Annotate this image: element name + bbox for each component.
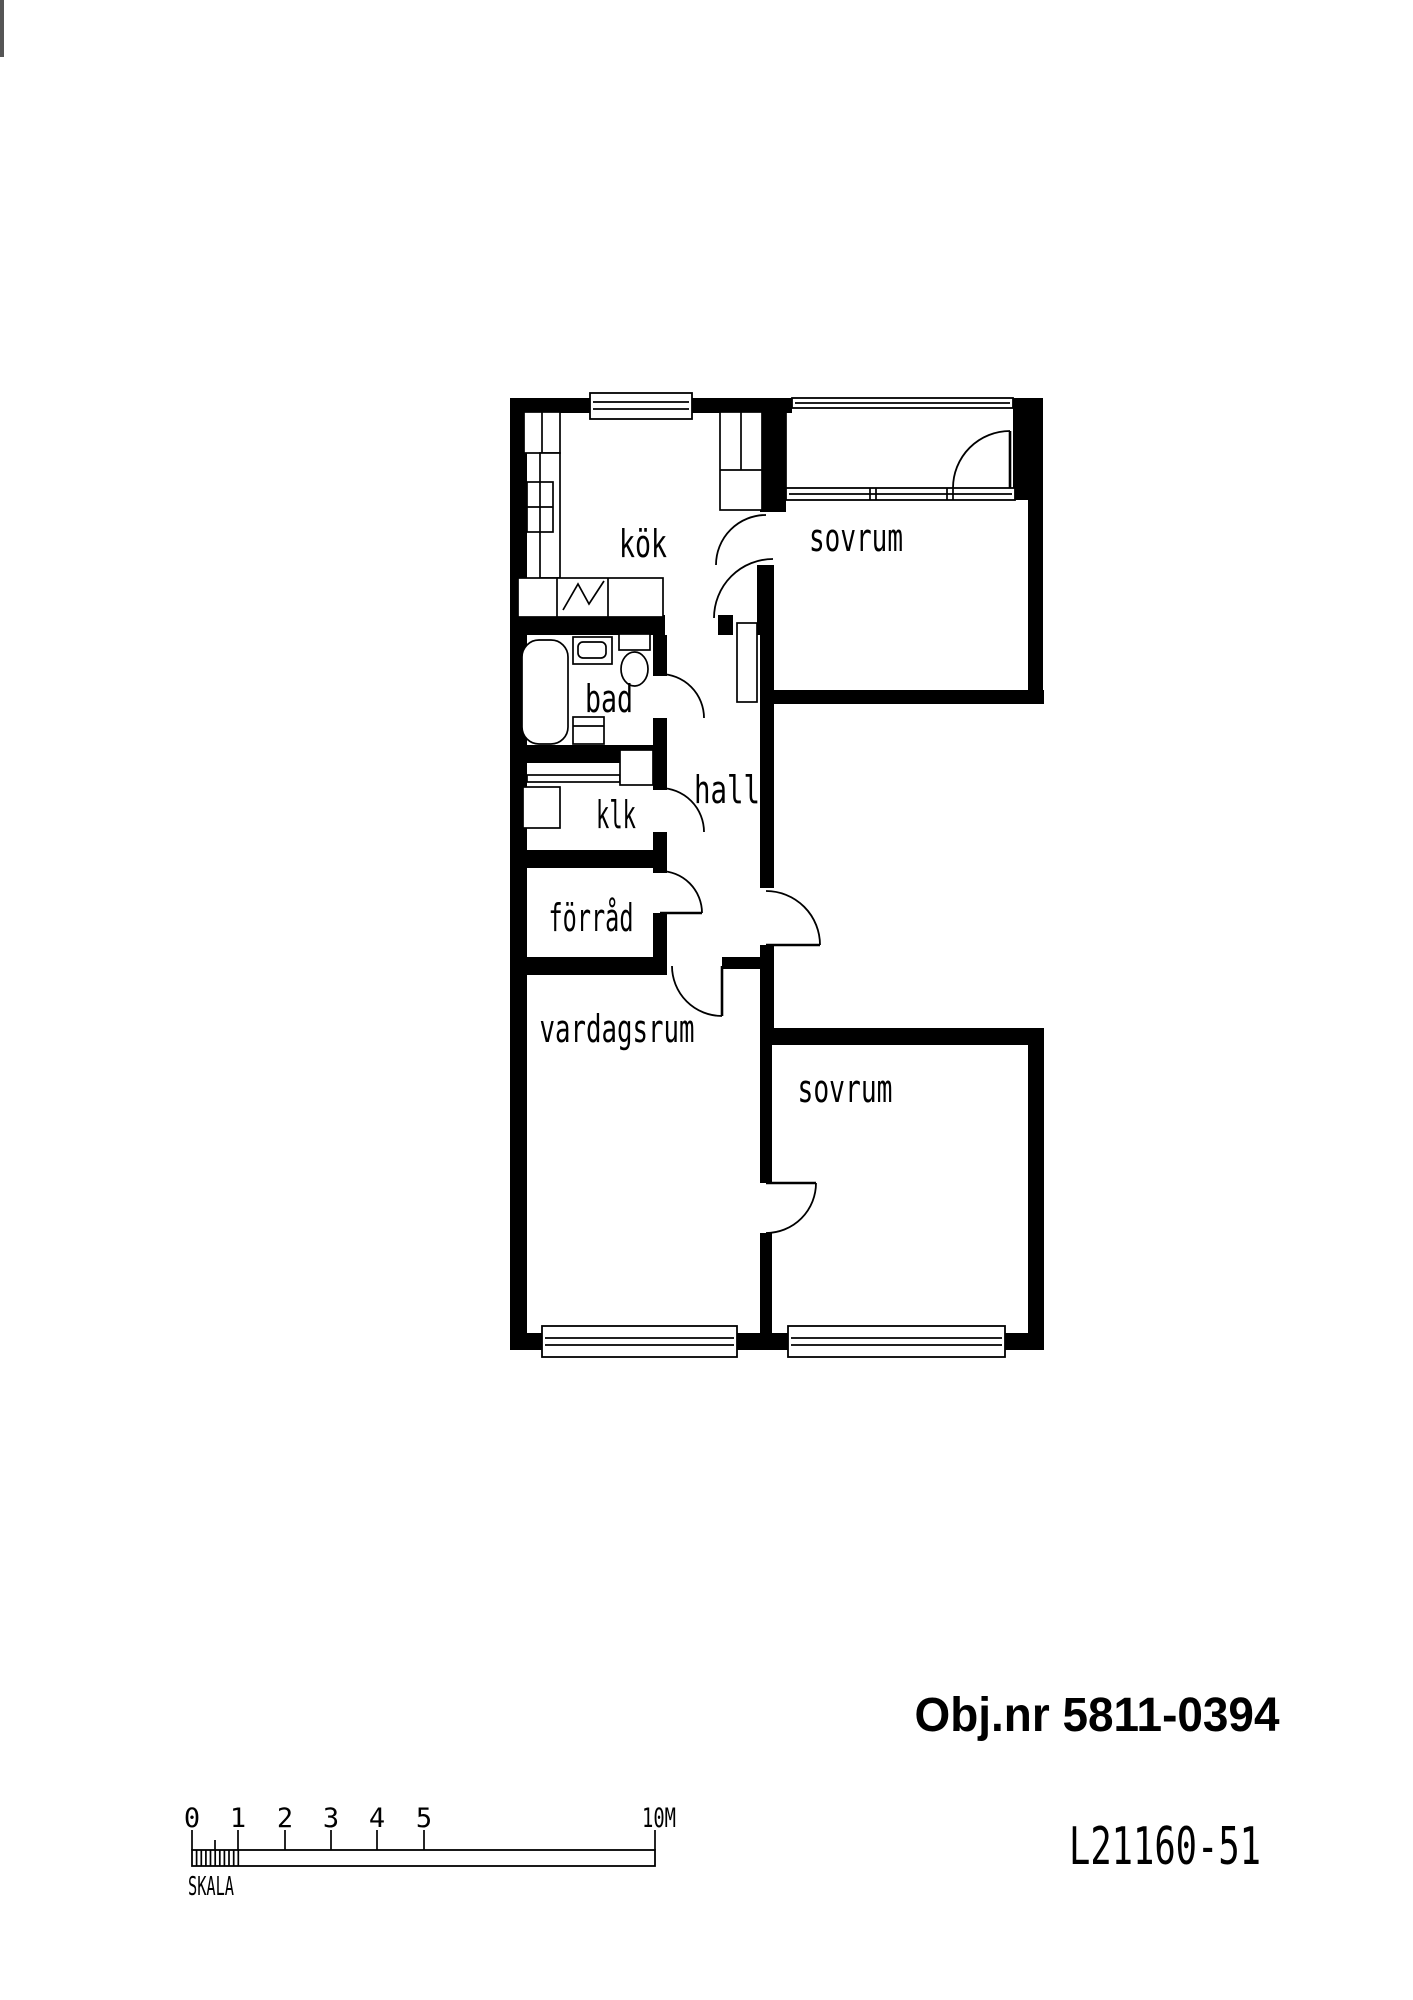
room-label-sovrum-top: sovrum xyxy=(809,516,903,560)
wall-outer-bottom-a xyxy=(510,1333,542,1350)
wall-spine-b xyxy=(760,945,774,1032)
scale-tick-5: 5 xyxy=(416,1803,432,1834)
wall-outer-bottom-c xyxy=(1005,1333,1044,1350)
wall-klk-right-a xyxy=(653,763,667,790)
drawing-id: L21160-51 xyxy=(1069,1817,1261,1877)
wall-hall-bottom xyxy=(722,957,762,969)
room-label-hall: hall xyxy=(694,768,760,812)
bathroom-door-arc xyxy=(660,674,704,718)
wall-outer-right-top xyxy=(1028,398,1043,704)
sink-counter-symbol xyxy=(518,578,663,617)
wall-outer-bottom-b xyxy=(737,1333,788,1350)
room-label-kok: kök xyxy=(619,522,667,566)
livingroom-window xyxy=(542,1326,737,1357)
wall-bad-right-a xyxy=(653,635,667,676)
scale-tick-4: 4 xyxy=(369,1803,385,1834)
sink-symbol xyxy=(573,637,612,664)
wall-spine-a xyxy=(757,565,774,635)
storage-door xyxy=(660,871,702,913)
wall-forrad-bottom xyxy=(510,957,667,975)
balcony-door-arc xyxy=(953,431,1010,488)
stove-symbol xyxy=(527,482,553,532)
balcony-window-band xyxy=(786,488,1015,500)
kitchen-window xyxy=(590,393,692,419)
washer-symbol xyxy=(573,717,604,744)
walls xyxy=(510,398,1044,1350)
object-number: Obj.nr 5811-0394 xyxy=(915,1689,1280,1742)
wall-klk-bottom xyxy=(510,850,667,868)
wall-forrad-right-b xyxy=(653,913,667,957)
bedroom2-window xyxy=(788,1326,1005,1357)
floor-plan-drawing: kök sovrum bad hall klk förråd vardagsru… xyxy=(0,0,1413,2000)
kitchen-fixtures xyxy=(518,412,762,617)
wall-outer-top-a xyxy=(510,398,590,413)
room-label-klk: klk xyxy=(596,793,636,837)
scale-tick-1: 1 xyxy=(230,1803,246,1834)
scale-bar: 0 1 2 3 4 5 10M SKALA xyxy=(184,1803,676,1902)
closet-box-symbol xyxy=(523,787,560,828)
wall-vardagsrum-sovrum2-b xyxy=(760,1233,772,1333)
wall-kok-door-jamb xyxy=(718,615,733,635)
bathtub-symbol xyxy=(522,640,568,744)
room-label-sovrum-bottom: sovrum xyxy=(798,1067,893,1111)
balcony xyxy=(786,398,1015,500)
balcony-door xyxy=(953,431,1010,488)
wall-klk-right-b xyxy=(653,832,667,850)
bedroom2-door xyxy=(766,1183,816,1233)
entrance-door xyxy=(766,891,820,945)
room-label-vardagsrum: vardagsrum xyxy=(540,1007,695,1051)
scale-tick-3: 3 xyxy=(323,1803,339,1834)
scale-label: SKALA xyxy=(188,1872,234,1902)
wall-outer-left xyxy=(510,398,527,1350)
room-label-forrad: förråd xyxy=(549,896,634,940)
closet-shelf-symbol xyxy=(527,775,620,782)
wall-bad-right-b xyxy=(653,718,667,745)
bedroom1-door-arc xyxy=(716,515,766,565)
scale-tick-0: 0 xyxy=(184,1803,200,1834)
room-label-bad: bad xyxy=(585,677,633,721)
wall-sovrum1-bottom xyxy=(773,690,1044,704)
wall-kok-sovrum1 xyxy=(760,398,786,512)
closet-duct-symbol xyxy=(620,750,653,785)
hall-wardrobe-symbol xyxy=(737,623,757,702)
wall-hall-right xyxy=(760,635,774,888)
wall-sovrum2-top xyxy=(760,1028,1044,1045)
scale-end-label: 10M xyxy=(642,1803,676,1834)
floor-plan-sheet: kök sovrum bad hall klk förråd vardagsru… xyxy=(0,0,1413,2000)
scale-bar-body xyxy=(192,1850,655,1866)
fridge-symbol xyxy=(720,412,762,510)
wall-kok-bottom xyxy=(510,615,665,635)
scale-tick-2: 2 xyxy=(277,1803,293,1834)
wall-vardagsrum-sovrum2-a xyxy=(760,1045,772,1183)
wall-outer-right-bottom xyxy=(1028,1028,1044,1350)
